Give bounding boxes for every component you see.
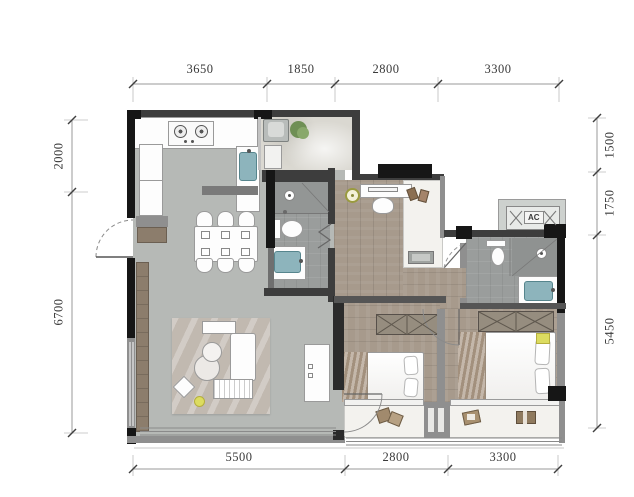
place-setting bbox=[221, 248, 230, 256]
dim-top-3: 2800 bbox=[373, 62, 400, 77]
desk-monitor bbox=[368, 187, 398, 192]
dim-left-2: 6700 bbox=[52, 299, 67, 326]
wardrobe-bedroom-1 bbox=[376, 314, 438, 335]
wall-living-bedroom1-stub bbox=[333, 430, 344, 440]
wall-right-upper bbox=[557, 237, 565, 313]
wall-column bbox=[254, 110, 272, 119]
dim-right-3: 5450 bbox=[603, 318, 618, 345]
pillow bbox=[403, 356, 418, 376]
cooktop-knob-icon bbox=[191, 140, 194, 143]
dim-left-1: 2000 bbox=[52, 143, 67, 170]
floor-drain-icon bbox=[283, 210, 287, 214]
dining-chair bbox=[238, 258, 255, 273]
dim-bottom-2: 2800 bbox=[383, 450, 410, 465]
wall-bath-east-lower bbox=[328, 248, 335, 302]
dim-right-1: 1500 bbox=[603, 132, 618, 159]
stool-icon bbox=[194, 396, 205, 407]
sofa bbox=[230, 333, 256, 381]
window-sill bbox=[450, 399, 560, 406]
dining-chair bbox=[217, 211, 234, 227]
faucet-icon bbox=[551, 288, 555, 292]
place-setting bbox=[201, 231, 210, 239]
pillar-slot bbox=[438, 408, 444, 432]
place-setting bbox=[201, 248, 210, 256]
wall-left-upper bbox=[127, 110, 135, 218]
cabinet-handle bbox=[308, 364, 313, 369]
pillow bbox=[403, 377, 419, 397]
burner-icon bbox=[174, 125, 187, 138]
toilet-tank bbox=[486, 240, 506, 247]
shower-area bbox=[272, 182, 328, 214]
cooktop-knob-icon bbox=[184, 140, 187, 143]
bed-throw-blanket bbox=[342, 352, 368, 402]
dining-chair bbox=[217, 258, 234, 273]
shower-head-dot bbox=[540, 252, 543, 255]
dining-chair bbox=[196, 258, 213, 273]
wall-bedroom-divider bbox=[437, 309, 445, 402]
balcony-seat-cushion bbox=[467, 414, 475, 420]
ottoman bbox=[213, 379, 253, 399]
wall-right-mid bbox=[557, 313, 565, 386]
place-setting bbox=[221, 231, 230, 239]
lamp-center-dot bbox=[351, 194, 354, 197]
ac-label: AC bbox=[524, 211, 544, 224]
wall-sill-south bbox=[127, 436, 345, 443]
wall-dining-bath bbox=[266, 170, 275, 248]
window-sill bbox=[344, 399, 424, 406]
wall-bedroom1-top bbox=[334, 296, 446, 303]
kitchen-sink-icon bbox=[239, 152, 257, 181]
utility-cabinet bbox=[264, 145, 282, 169]
toilet-icon bbox=[491, 247, 505, 266]
dining-chair bbox=[196, 211, 213, 227]
wall-right-lower bbox=[559, 401, 565, 443]
shower-area-master bbox=[512, 238, 558, 276]
wall-kitchen-utility-divider bbox=[258, 117, 261, 170]
pillar-slot bbox=[428, 408, 434, 432]
toilet-icon bbox=[281, 220, 303, 238]
place-setting bbox=[241, 231, 250, 239]
wall-master-bedroom-top bbox=[460, 303, 566, 309]
vent-grille bbox=[412, 254, 430, 261]
place-setting bbox=[241, 248, 250, 256]
dim-bottom-3: 3300 bbox=[490, 450, 517, 465]
dining-chair bbox=[238, 211, 255, 227]
faucet-icon bbox=[247, 149, 251, 153]
wardrobe-master bbox=[478, 311, 554, 332]
wash-basin-icon bbox=[274, 251, 301, 273]
balcony-seat-stripe bbox=[523, 411, 527, 424]
dim-bottom-1: 5500 bbox=[226, 450, 253, 465]
wall-column bbox=[456, 226, 472, 239]
cabinet-divider bbox=[139, 180, 163, 181]
shower-head-dot bbox=[288, 194, 291, 197]
dim-top-2: 1850 bbox=[288, 62, 315, 77]
faucet-icon bbox=[299, 259, 303, 263]
burner-icon bbox=[195, 125, 208, 138]
wall-balcony-east bbox=[440, 176, 445, 238]
wall-column bbox=[544, 224, 566, 238]
wash-basin-icon bbox=[524, 281, 553, 301]
wall-left-lower bbox=[127, 338, 135, 438]
wall-header-black bbox=[378, 164, 432, 178]
kitchen-low-cabinet bbox=[136, 216, 168, 227]
floor-study bbox=[334, 180, 404, 302]
wall-masterbath-west-upper bbox=[460, 243, 467, 268]
dim-top-1: 3650 bbox=[187, 62, 214, 77]
entry-door-arc bbox=[96, 220, 133, 257]
wall-living-bedroom1 bbox=[333, 296, 344, 390]
plant-icon bbox=[297, 127, 309, 139]
wall-bath-south bbox=[264, 288, 332, 296]
floor-plan: AC bbox=[0, 0, 634, 497]
wall-top bbox=[127, 110, 360, 117]
coffee-table-small bbox=[202, 342, 222, 362]
desk-chair bbox=[372, 197, 394, 214]
washer-door bbox=[268, 122, 284, 137]
cabinet-handle bbox=[308, 373, 313, 378]
kitchen-stub-wall bbox=[202, 186, 258, 195]
tv-console bbox=[136, 262, 149, 432]
wall-utility-east bbox=[352, 112, 360, 176]
wall-corner-se bbox=[548, 386, 566, 401]
kitchen-wood-cabinet bbox=[137, 227, 167, 243]
dim-top-4: 3300 bbox=[485, 62, 512, 77]
bed-throw-blanket bbox=[458, 332, 486, 402]
wall-bath-east-upper bbox=[328, 168, 335, 224]
dim-right-2: 1750 bbox=[603, 190, 618, 217]
console-table bbox=[202, 321, 236, 334]
accent-cushion bbox=[536, 333, 550, 344]
wall-left-mid bbox=[127, 258, 135, 338]
